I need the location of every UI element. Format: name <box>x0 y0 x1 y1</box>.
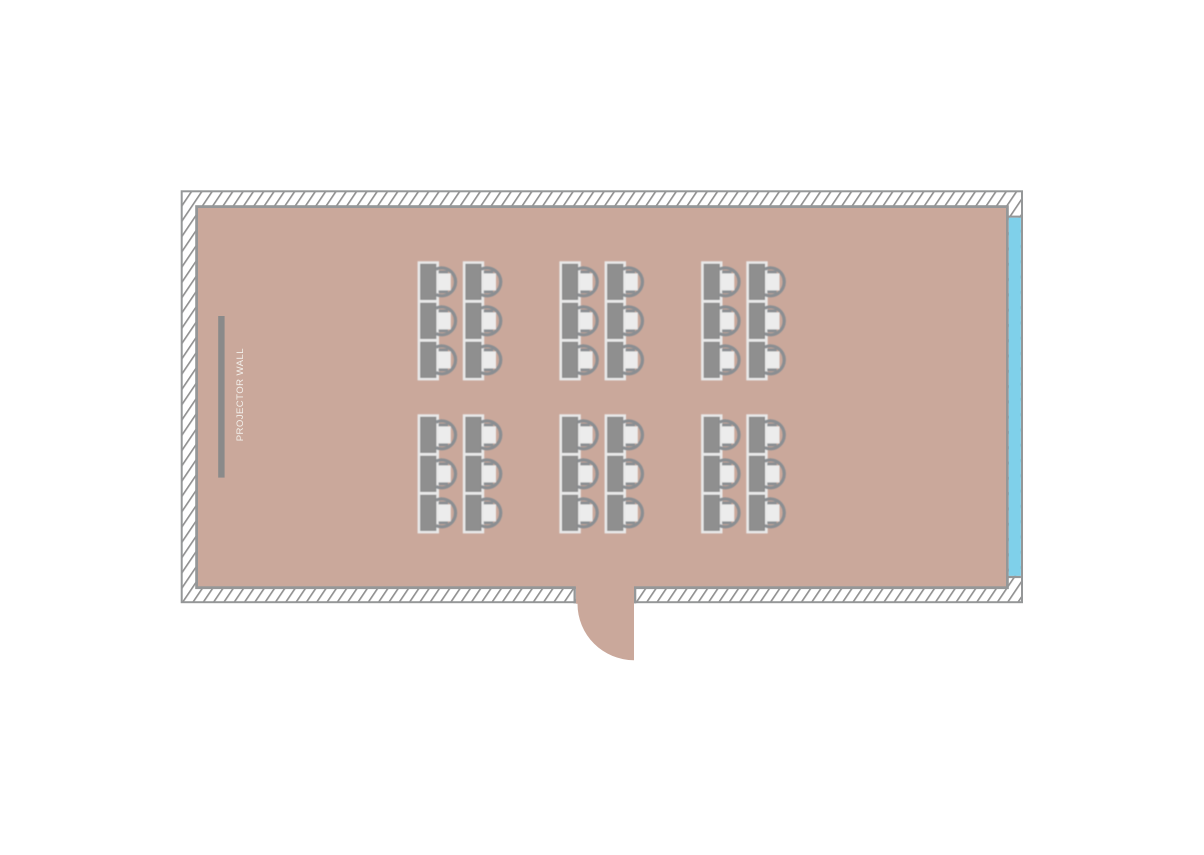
svg-text:PROJECTOR WALL: PROJECTOR WALL <box>235 348 246 442</box>
